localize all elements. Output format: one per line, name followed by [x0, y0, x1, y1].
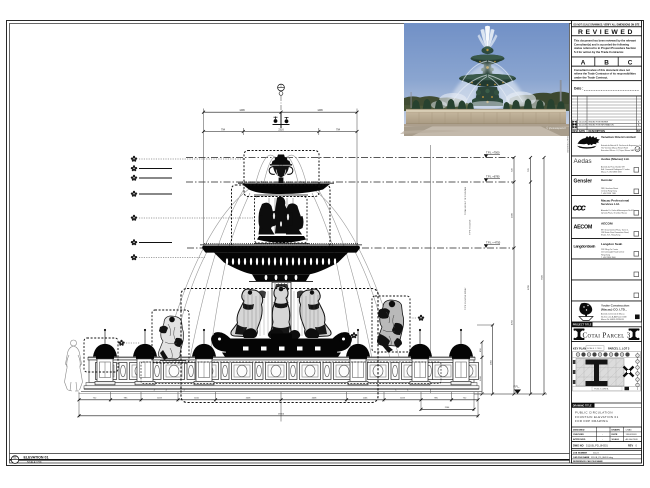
svg-text:Alameda Dr. Carlos d'Assumpcao: Alameda Dr. Carlos d'Assumpcao No.411 [601, 209, 634, 212]
svg-text:Gensler: Gensler [574, 179, 593, 185]
svg-text:T +852 2598 7188: T +852 2598 7188 [601, 193, 616, 195]
svg-text:8/F, Grand Central Plaza, Towe: 8/F, Grand Central Plaza, Tower 2, [601, 229, 629, 232]
svg-text:(Macau) CO. LTD.,: (Macau) CO. LTD., [601, 307, 627, 311]
svg-text:1496: 1496 [317, 109, 323, 112]
svg-text:Langdon Seah: Langdon Seah [601, 242, 622, 246]
svg-text:PARCEL 1, LOT 3: PARCEL 1, LOT 3 [608, 347, 630, 351]
svg-text:CHECKED: CHECKED [573, 434, 584, 436]
svg-text:TYPE 3 NOZZLE: TYPE 3 NOZZLE [470, 219, 472, 235]
svg-text:Cotai Parcel 3: Cotai Parcel 3 [582, 331, 630, 339]
svg-text:DWG NO: DWG NO [573, 444, 584, 447]
svg-text:KEY PLAN: KEY PLAN [573, 347, 586, 351]
svg-text:C: C [628, 59, 633, 66]
svg-text:SCALE: SCALE [612, 438, 620, 441]
svg-text:© photosdeparis.fr: © photosdeparis.fr [546, 127, 566, 130]
svg-text:Shatin, N.T., Hong Kong: Shatin, N.T., Hong Kong [601, 234, 620, 237]
svg-text:FOR FRP DRAWING: FOR FRP DRAWING [575, 419, 609, 423]
svg-text:Avenida da Praia Grande 599: Avenida da Praia Grande 599 [601, 166, 625, 169]
svg-text:LangdonSeah: LangdonSeah [574, 245, 597, 249]
svg-text:TYPE 2 NOZZLE SPRAY: TYPE 2 NOZZLE SPRAY [464, 287, 467, 310]
svg-text:ELEVATION 01: ELEVATION 01 [24, 456, 49, 460]
svg-text:Macau T +853 2833 1833: Macau T +853 2833 1833 [601, 172, 621, 174]
svg-text:ccc: ccc [573, 203, 587, 214]
svg-text:2316: 2316 [278, 128, 284, 131]
svg-text:01: 01 [13, 456, 17, 460]
svg-text:5.4 for action by the Trade Co: 5.4 for action by the Trade Contractor. [574, 50, 624, 54]
svg-text:1200: 1200 [480, 375, 482, 381]
svg-text:Consultant(s) and is accorded: Consultant(s) and is accorded the follow… [574, 42, 629, 46]
svg-text:Gensler: Gensler [601, 178, 613, 182]
svg-text:CHAD: CHAD [626, 428, 633, 431]
svg-text:status referred to in Project: status referred to in Project Procedure … [574, 46, 636, 50]
svg-text:T.P.L +7500: T.P.L +7500 [486, 151, 500, 155]
svg-text:138 Shatin Rural Committee Roa: 138 Shatin Rural Committee Road, [601, 231, 629, 234]
svg-text:4750: 4750 [511, 319, 513, 325]
svg-text:02.04.09: 02.04.09 [579, 125, 586, 127]
svg-text:111 Connaught Road Central: 111 Connaught Road Central [601, 251, 625, 254]
svg-text:JOB NUMBER: JOB NUMBER [573, 453, 587, 455]
svg-text:CAD FILE NAME: CAD FILE NAME [573, 456, 590, 459]
svg-text:PUBLIC AREA: PUBLIC AREA [594, 388, 609, 391]
svg-text:511UB_PD_8H301: 511UB_PD_8H301 [586, 443, 608, 447]
svg-text:Hong Kong: Hong Kong [601, 254, 610, 256]
svg-text:DO NOT SCALE DRAWINGS. VERIFY: DO NOT SCALE DRAWINGS. VERIFY ALL DIMENS… [574, 22, 640, 26]
svg-text:SCALE 1:7500: SCALE 1:7500 [587, 347, 602, 350]
svg-text:APPROVED: APPROVED [573, 438, 586, 441]
svg-text:REFERENCE CAD FILE NAME: REFERENCE CAD FILE NAME [573, 460, 603, 463]
svg-text:19400: 19400 [278, 414, 285, 416]
svg-text:Central, Hong Kong: Central, Hong Kong [601, 190, 617, 193]
svg-text:SCALE 1:50: SCALE 1:50 [27, 460, 42, 464]
svg-text:Aedas: Aedas [574, 158, 592, 165]
svg-text:DESIGNED: DESIGNED [573, 429, 585, 431]
svg-text:7500: 7500 [541, 274, 543, 280]
svg-text:2050: 2050 [490, 359, 492, 365]
svg-text:28/F, Gresham Street: 28/F, Gresham Street [601, 187, 619, 190]
svg-text:Aedas (Macau) Ltd.: Aedas (Macau) Ltd. [601, 157, 630, 161]
svg-text:511UB_PD_8H301.dwg: 511UB_PD_8H301.dwg [591, 457, 614, 459]
svg-text:AECOM: AECOM [601, 222, 613, 226]
svg-text:DRAWING TITLE: DRAWING TITLE [573, 405, 592, 408]
svg-text:Date :: Date : [574, 87, 583, 91]
svg-text:under the Trade Contract.: under the Trade Contract. [574, 75, 608, 79]
svg-text:TOTAL HEIGHT OF FOUNTAIN: TOTAL HEIGHT OF FOUNTAIN [464, 186, 467, 215]
svg-text:ISSUED FOR REVIEW: ISSUED FOR REVIEW [589, 122, 609, 124]
svg-text:Macau Tel: 00853-28785033: Macau Tel: 00853-28785033 [601, 319, 624, 321]
svg-text:relieve the Trade Contractor o: relieve the Trade Contractor of its resp… [574, 72, 637, 76]
svg-text:F.F.L.: F.F.L. [514, 385, 520, 389]
svg-text:PROJECT TITLE: PROJECT TITLE [573, 324, 592, 327]
svg-text:REV: REV [628, 444, 633, 447]
svg-text:REVIEWED: REVIEWED [578, 29, 635, 36]
svg-text:Dynasty Plaza, 16 andar, Macau: Dynasty Plaza, 16 andar, Macau [601, 212, 627, 215]
svg-text:1496: 1496 [239, 109, 245, 112]
svg-text:Venetian Orient Limited: Venetian Orient Limited [601, 135, 636, 139]
svg-text:13/04/2009: 13/04/2009 [626, 434, 638, 436]
svg-text:A: A [581, 59, 586, 66]
svg-text:AECOM: AECOM [574, 225, 593, 231]
svg-text:AS SHOWN: AS SHOWN [626, 438, 638, 441]
svg-text:Executive Offices - L2, Taipa,: Executive Offices - L2, Taipa, Macau SAR [601, 149, 635, 152]
svg-text:10.04.09: 10.04.09 [579, 122, 586, 124]
svg-text:794: 794 [336, 128, 341, 131]
svg-text:T.P.L + 4750: T.P.L + 4750 [486, 241, 501, 245]
svg-text:DRAWN: DRAWN [612, 428, 621, 431]
svg-text:Estrada da Baia de N. Senhora: Estrada da Baia de N. Senhora da Esperan… [601, 144, 641, 147]
svg-text:B: B [604, 59, 609, 66]
svg-text:The Venetian Macao Resort Hote: The Venetian Macao Resort Hotel [601, 147, 629, 150]
svg-text:794: 794 [221, 128, 226, 131]
svg-text:T.P.L +6780: T.P.L +6780 [486, 175, 500, 179]
svg-text:25/F Wing On Centre: 25/F Wing On Centre [601, 248, 618, 251]
svg-text:DATE: DATE [612, 433, 618, 436]
svg-text:Services Ltd.: Services Ltd. [601, 202, 620, 206]
svg-text:Consultant review of this docu: Consultant review of this document does … [574, 68, 630, 72]
svg-text:51123: 51123 [593, 453, 599, 455]
svg-text:2030: 2030 [511, 212, 513, 218]
svg-text:ISSUED FOR INFORMATION: ISSUED FOR INFORMATION [589, 124, 615, 127]
svg-text:Avenida Comercial de Macau: Avenida Comercial de Macau [601, 313, 624, 316]
svg-text:This document has been reviewe: This document has been reviewed by the r… [574, 39, 636, 43]
svg-text:No.251, Lote A, AIA Tower 1808: No.251, Lote A, AIA Tower 1808 [601, 315, 626, 318]
svg-text:6780: 6780 [528, 284, 530, 290]
